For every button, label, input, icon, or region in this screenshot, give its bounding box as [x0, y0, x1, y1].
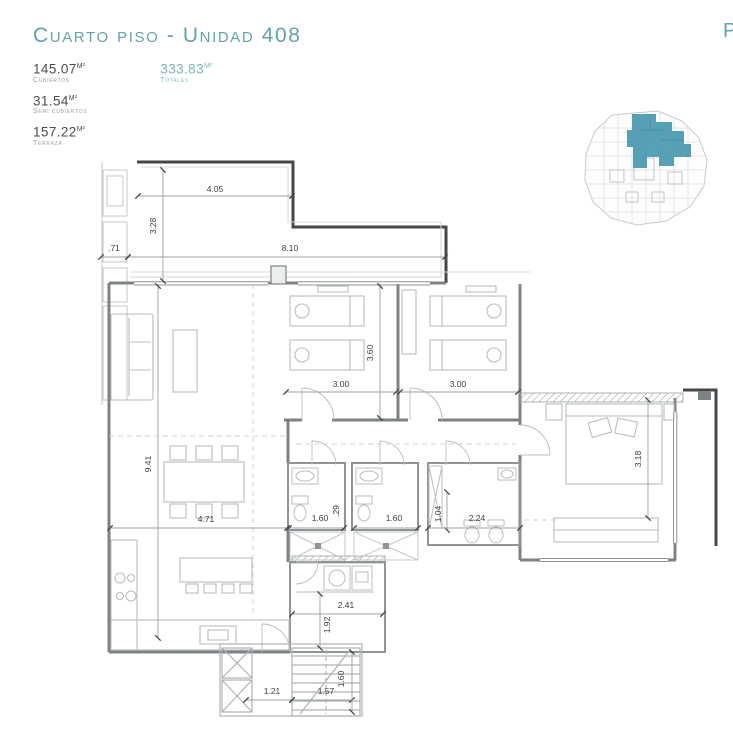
dimension-label: 3.18	[633, 450, 643, 467]
dimension-label: 9.41	[143, 455, 153, 472]
balcony-ac-unit	[698, 391, 711, 400]
master-bedroom-furniture	[546, 404, 674, 542]
doors	[262, 388, 550, 652]
dimension-label: 1.60	[312, 513, 329, 523]
dimension-label: .29	[331, 505, 341, 517]
dimension-label: 3.28	[148, 217, 158, 234]
bathroom-fixtures	[292, 466, 516, 543]
dimension-label: 4.71	[198, 514, 215, 524]
dimension-label: 3.00	[333, 379, 350, 389]
bedroom1-furniture	[290, 286, 364, 370]
dimension-label: 1.04	[433, 505, 443, 522]
keyplan	[582, 108, 710, 228]
terrace-offsets	[130, 167, 530, 278]
facade-column	[271, 266, 286, 284]
dimension-labels: 4.05 3.28 .71 8.10 3.00 3.60 3.00 9.41 4…	[108, 184, 643, 696]
laundry-fixtures	[296, 566, 374, 592]
dimension-label: 3.60	[365, 344, 375, 361]
floor-plan-drawing: 4.05 3.28 .71 8.10 3.00 3.60 3.00 9.41 4…	[0, 0, 733, 736]
bedroom2-furniture	[402, 286, 506, 370]
hatched-wall-master	[520, 393, 683, 402]
living-room-furniture	[111, 314, 197, 400]
dining-furniture	[164, 446, 244, 518]
unit-walls	[109, 283, 676, 652]
dimension-label: 1.92	[322, 616, 332, 633]
dimension-label: 1.57	[318, 686, 335, 696]
dimension-label: 1.60	[336, 670, 346, 687]
window-glazing	[134, 282, 677, 562]
dimension-label: .71	[108, 243, 120, 253]
dimension-label: 8.10	[282, 243, 299, 253]
dimension-label: 1.21	[264, 686, 281, 696]
dimension-label: 2.41	[338, 600, 355, 610]
dimension-label: 1.60	[386, 513, 403, 523]
dimension-label: 2.24	[469, 513, 486, 523]
floorplan-page: { "header": { "title": "Cuarto piso - Un…	[0, 0, 733, 736]
reference-lines	[109, 284, 560, 618]
dimension-label: 4.05	[207, 184, 224, 194]
dimension-label: 3.00	[450, 379, 467, 389]
